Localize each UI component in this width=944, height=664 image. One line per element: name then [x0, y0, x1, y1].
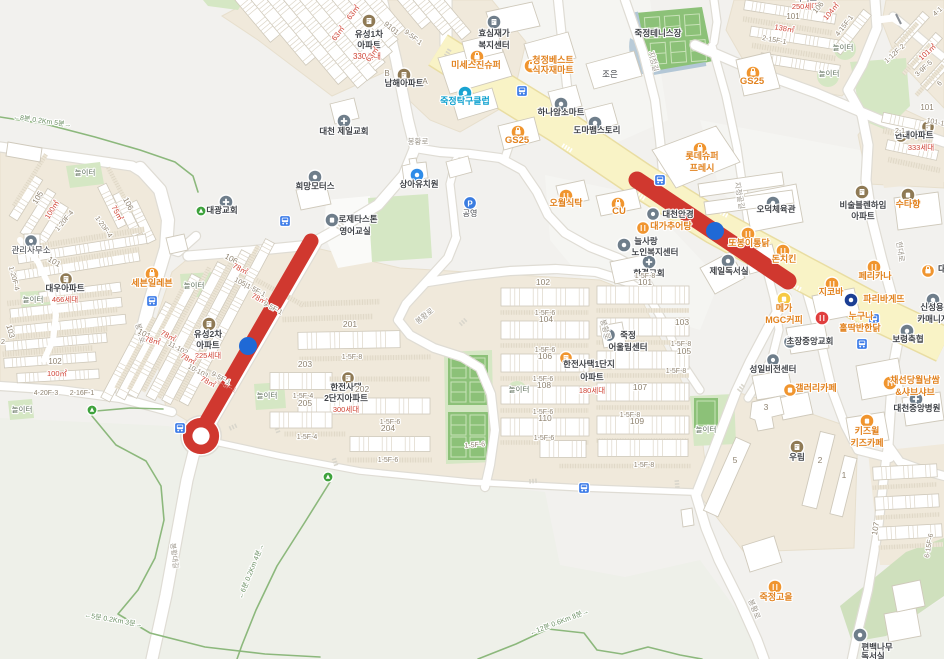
- svg-text:프레시: 프레시: [690, 162, 715, 173]
- svg-text:대천소: 대천소: [938, 263, 944, 274]
- svg-text:봉황로: 봉황로: [408, 136, 429, 146]
- svg-text:아파트: 아파트: [196, 340, 220, 350]
- svg-text:100㎡: 100㎡: [47, 369, 68, 378]
- svg-text:아파트: 아파트: [851, 211, 875, 221]
- svg-text:유성2차: 유성2차: [194, 329, 222, 339]
- svg-text:파리바게뜨: 파리바게뜨: [863, 293, 904, 304]
- svg-text:466세대: 466세대: [52, 295, 78, 304]
- svg-text:106: 106: [538, 351, 552, 361]
- svg-text:2: 2: [1, 337, 5, 346]
- svg-text:한전사택1단지: 한전사택1단지: [563, 359, 615, 369]
- svg-text:비술블렌하임: 비술블렌하임: [840, 200, 887, 210]
- svg-text:키즈윌: 키즈윌: [855, 425, 880, 436]
- svg-text:오월식탁: 오월식탁: [549, 197, 583, 208]
- svg-text:P: P: [467, 200, 473, 209]
- svg-text:201: 201: [343, 319, 357, 329]
- svg-text:대우아파트: 대우아파트: [45, 283, 84, 293]
- svg-text:영어교실: 영어교실: [339, 226, 370, 236]
- svg-text:복지센터: 복지센터: [478, 40, 509, 50]
- svg-text:청정베스트: 청정베스트: [532, 54, 574, 65]
- svg-text:대가추어탕: 대가추어탕: [650, 220, 692, 231]
- svg-text:GS25: GS25: [505, 135, 530, 146]
- svg-text:대천 제일교회: 대천 제일교회: [319, 126, 368, 136]
- svg-text:제일독서실: 제일독서실: [709, 266, 748, 276]
- svg-text:CU: CU: [612, 206, 626, 217]
- svg-text:1-5F-8: 1-5F-8: [635, 273, 656, 280]
- svg-text:1-5F-8: 1-5F-8: [634, 462, 655, 469]
- svg-text:남해아파트: 남해아파트: [384, 78, 423, 88]
- svg-text:101: 101: [920, 103, 934, 112]
- svg-text:놀이터: 놀이터: [696, 424, 717, 434]
- svg-text:203: 203: [298, 359, 312, 369]
- svg-text:3: 3: [764, 402, 769, 412]
- svg-text:조은: 조은: [602, 69, 618, 79]
- svg-text:신성용: 신성용: [920, 302, 944, 312]
- svg-text:204: 204: [381, 423, 395, 433]
- svg-text:관리사무소: 관리사무소: [11, 245, 50, 255]
- svg-text:아파트: 아파트: [357, 40, 381, 50]
- svg-text:대광교회: 대광교회: [206, 205, 237, 215]
- svg-text:롯데슈퍼: 롯데슈퍼: [685, 150, 718, 161]
- svg-text:노인복지센터: 노인복지센터: [632, 247, 679, 257]
- svg-text:죽정탁구클럽: 죽정탁구클럽: [440, 95, 490, 106]
- svg-text:메가: 메가: [776, 302, 793, 313]
- svg-text:아파트: 아파트: [580, 372, 604, 382]
- svg-text:1: 1: [842, 470, 847, 480]
- svg-text:대천중앙병원: 대천중앙병원: [894, 403, 941, 413]
- svg-text:놀이터: 놀이터: [257, 390, 278, 400]
- svg-text:죽정고을: 죽정고을: [759, 591, 792, 602]
- svg-text:식자재마트: 식자재마트: [532, 64, 574, 75]
- svg-text:상아유치원: 상아유치원: [399, 179, 438, 189]
- svg-text:죽정: 죽정: [620, 330, 636, 340]
- svg-text:205: 205: [298, 398, 312, 408]
- svg-text:어울림센터: 어울림센터: [608, 342, 647, 352]
- svg-text:효심재가: 효심재가: [478, 28, 509, 38]
- svg-text:108: 108: [537, 380, 551, 390]
- svg-text:도마뱀스토리: 도마뱀스토리: [574, 125, 621, 135]
- svg-text:놀이터: 놀이터: [23, 294, 44, 304]
- svg-text:성일비전센터: 성일비전센터: [750, 364, 797, 374]
- svg-text:또봉이통닭: 또봉이통닭: [728, 237, 770, 248]
- svg-text:&샤브샤브: &샤브샤브: [895, 386, 935, 397]
- svg-text:1-5F-6: 1-5F-6: [534, 435, 555, 442]
- svg-text:놀이터: 놀이터: [184, 280, 205, 290]
- svg-text:공영: 공영: [463, 208, 478, 218]
- svg-text:독서실: 독서실: [861, 651, 885, 659]
- svg-text:늘사랑: 늘사랑: [634, 236, 658, 246]
- svg-text:GS25: GS25: [740, 76, 765, 87]
- svg-text:333세대: 333세대: [908, 143, 934, 152]
- svg-text:희망모터스: 희망모터스: [295, 181, 334, 191]
- svg-text:누구나: 누구나: [849, 310, 875, 321]
- svg-text:102: 102: [536, 277, 550, 287]
- svg-text:대천안경: 대천안경: [662, 209, 693, 219]
- svg-text:초장중앙교회: 초장중앙교회: [787, 336, 834, 346]
- svg-text:놀이터: 놀이터: [75, 167, 96, 177]
- svg-text:4-20F-3: 4-20F-3: [34, 390, 59, 397]
- svg-text:유성1차: 유성1차: [355, 29, 383, 39]
- svg-text:180세대: 180세대: [579, 386, 605, 395]
- svg-text:세븐일레븐: 세븐일레븐: [131, 277, 172, 288]
- svg-text:갤러리카페: 갤러리카페: [795, 382, 836, 393]
- svg-text:2: 2: [818, 455, 823, 465]
- svg-text:채선당월남쌈: 채선당월남쌈: [890, 374, 940, 385]
- svg-text:109: 109: [630, 416, 644, 426]
- svg-text:225세대: 225세대: [195, 351, 221, 360]
- svg-text:하나암소마트: 하나암소마트: [538, 107, 585, 117]
- svg-text:101: 101: [786, 12, 800, 21]
- svg-text:5: 5: [733, 455, 738, 465]
- svg-text:놀이터: 놀이터: [509, 384, 530, 394]
- svg-text:202: 202: [355, 384, 369, 394]
- svg-text:104: 104: [539, 314, 553, 324]
- svg-text:카매니저: 카매니저: [917, 314, 944, 324]
- svg-text:1-5F-4: 1-5F-4: [297, 434, 318, 441]
- svg-text:110: 110: [538, 413, 552, 423]
- svg-text:1-5F-6: 1-5F-6: [378, 457, 399, 464]
- svg-text:B: B: [384, 69, 389, 78]
- svg-text:보령축협: 보령축협: [892, 334, 923, 344]
- svg-text:지코바: 지코바: [819, 286, 845, 297]
- svg-text:2단지아파트: 2단지아파트: [324, 393, 368, 403]
- svg-text:1-5F-8: 1-5F-8: [666, 368, 687, 375]
- svg-text:A: A: [422, 77, 428, 86]
- svg-text:MGC커피: MGC커피: [765, 314, 803, 325]
- svg-text:2-1: 2-1: [895, 128, 905, 135]
- svg-text:103: 103: [675, 317, 689, 327]
- svg-text:300세대: 300세대: [333, 405, 359, 414]
- svg-text:102: 102: [48, 357, 62, 366]
- svg-text:2-16F-1: 2-16F-1: [70, 390, 95, 397]
- svg-text:107: 107: [633, 382, 647, 392]
- svg-text:돈치킨: 돈치킨: [772, 253, 797, 264]
- svg-text:우림: 우림: [789, 452, 805, 462]
- svg-text:페리카나: 페리카나: [858, 270, 892, 281]
- svg-text:105: 105: [677, 346, 691, 356]
- svg-text:로제타스톤: 로제타스톤: [338, 214, 377, 224]
- svg-text:홀딱반한닭: 홀딱반한닭: [839, 322, 881, 333]
- svg-text:놀이터: 놀이터: [819, 68, 840, 78]
- svg-text:키즈카페: 키즈카페: [850, 437, 883, 448]
- svg-text:미세스진슈퍼: 미세스진슈퍼: [451, 59, 501, 70]
- svg-text:1-5F-8: 1-5F-8: [342, 354, 363, 361]
- svg-text:죽정테니스장: 죽정테니스장: [635, 28, 682, 38]
- svg-text:놀이터: 놀이터: [12, 404, 33, 414]
- svg-text:오덕체육관: 오덕체육관: [756, 204, 795, 214]
- svg-text:놀이터: 놀이터: [833, 42, 854, 52]
- svg-text:수타향: 수타향: [896, 198, 922, 209]
